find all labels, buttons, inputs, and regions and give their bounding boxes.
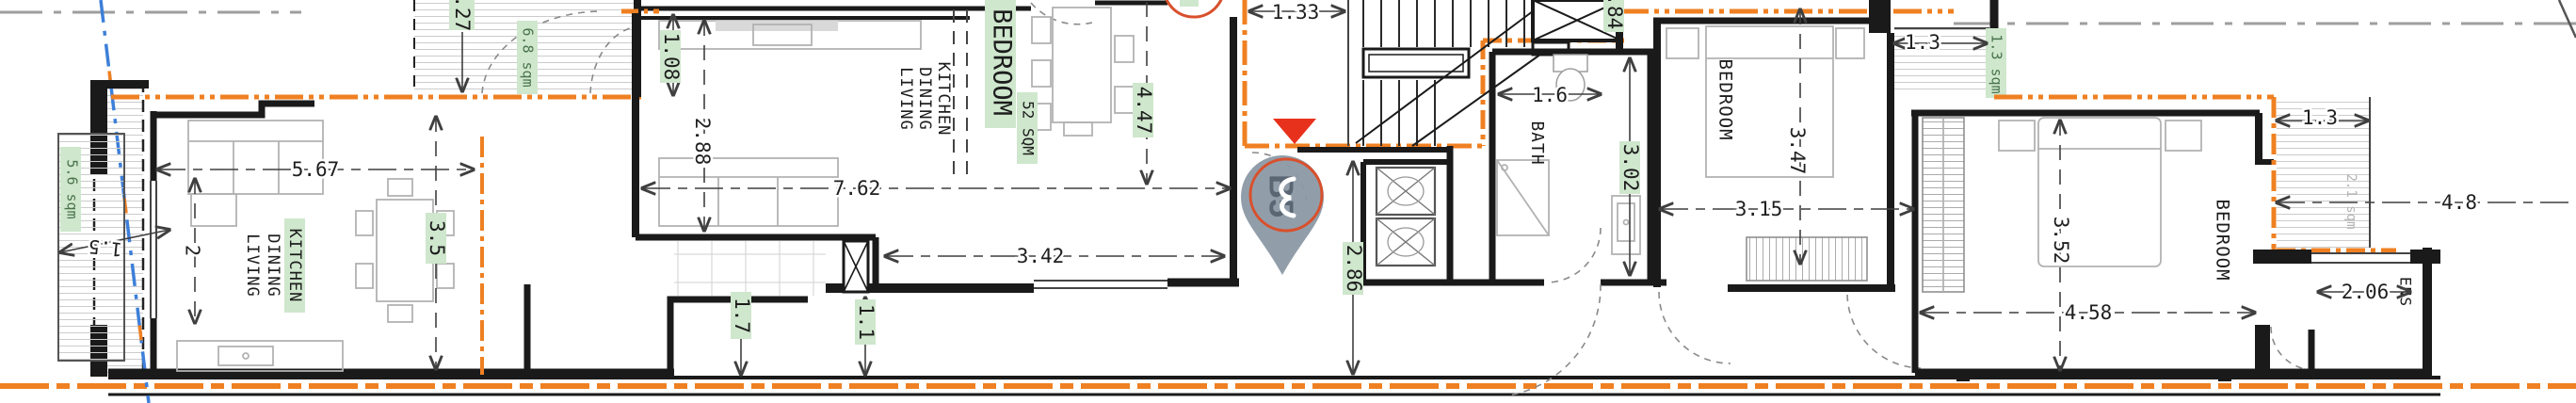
bedroom-door-arc — [1659, 292, 1731, 363]
dim-3-42: 3.42 — [1017, 245, 1065, 267]
unit2-kitchen-label: KITCHEN — [934, 62, 953, 137]
dim-1-3-right: 1.3 — [2302, 106, 2338, 129]
bath-label: BATH — [1527, 121, 1547, 165]
dim-2: 2 — [182, 245, 204, 256]
small-balcony-area-label: 1.3 sqm — [1988, 34, 2005, 93]
dim-3-02: 3.02 — [1619, 144, 1642, 192]
dining-table — [1053, 8, 1111, 122]
dim-3-47: 3.47 — [1786, 127, 1809, 175]
dim-4-8: 4.8 — [2441, 191, 2477, 214]
dim-1-08: 1.08 — [660, 33, 683, 81]
top-balcony: 6.8 sqm — [414, 0, 637, 97]
door-arc — [1847, 295, 1921, 368]
dim-1-7: 1.7 — [731, 298, 753, 333]
dim-2-88: 2.88 — [691, 118, 714, 166]
dim-4-58: 4.58 — [2065, 301, 2113, 324]
nightstand — [1666, 28, 1699, 58]
dim-2-06: 2.06 — [2342, 281, 2390, 303]
dim-5-67: 5.67 — [292, 158, 340, 181]
unit2-furniture — [659, 8, 1134, 226]
dim-3-5: 3.5 — [426, 220, 448, 256]
entrance-marker-triangle — [1273, 119, 1316, 144]
dim-1-5: 1.5 — [88, 235, 123, 262]
unit1-dining-label: DINING — [264, 234, 282, 297]
dim-7-62: 7.62 — [833, 177, 881, 200]
bedroom-right-label: BEDROOM — [2213, 199, 2233, 281]
chaise — [191, 194, 236, 226]
kitchen-counter — [177, 341, 343, 371]
nightstand — [2165, 121, 2201, 151]
bedroom-right: BEDROOM — [1911, 97, 2314, 381]
sofa — [659, 158, 838, 226]
dim-1-84: 1.84 — [1603, 0, 1626, 29]
east-balcony-area-label: 2.1 sqm — [2343, 173, 2359, 229]
bedroom-mid-label: BEDROOM — [1715, 58, 1736, 140]
unit2-bedroom-label: BEDROOM — [988, 8, 1017, 116]
dim-3-52: 3.52 — [2050, 217, 2072, 265]
washer-units — [1377, 168, 1435, 266]
dim-1-1: 1.1 — [855, 304, 877, 340]
location-pin-b5[interactable]: B5 — [1241, 155, 1324, 275]
dim-2-27: 2.27 — [451, 0, 474, 31]
dim-1-33: 1.33 — [1272, 1, 1320, 24]
unit1-room-label: LIVING DINING KITCHEN — [243, 218, 305, 313]
dim-1-3-top: 1.3 — [1905, 31, 1940, 54]
dim-1-6: 1.6 — [1532, 84, 1568, 106]
unit2-dining-label: DINING — [915, 67, 934, 130]
dining-table — [377, 200, 433, 301]
top-balcony-area-label: 6.8 sqm — [520, 27, 537, 87]
wardrobe — [1747, 237, 1867, 281]
utility-closet — [1363, 146, 1450, 282]
ensuite: ENS — [2253, 248, 2440, 378]
terrace-tiles — [674, 241, 826, 296]
dim-3-15: 3.15 — [1735, 198, 1783, 220]
floorplan-stage: 5.6 sqm 6.8 sqm — [0, 0, 2576, 403]
kitchen-sink — [218, 347, 273, 365]
ens-door-arc — [2271, 327, 2314, 370]
stair-core — [1245, 0, 1954, 207]
site-boundary-bottom — [0, 378, 2576, 395]
sofa — [188, 121, 323, 194]
unit1-living-label: LIVING — [243, 234, 262, 297]
dim-4-47: 4.47 — [1133, 87, 1155, 135]
unit2-living-label: LIVING — [896, 67, 915, 130]
dim-2-86: 2.86 — [1343, 245, 1365, 293]
stair-handrail — [1363, 49, 1469, 77]
unit1-kitchen-label: KITCHEN — [285, 229, 304, 303]
nightstand — [1836, 28, 1864, 58]
west-balcony-area-label: 5.6 sqm — [64, 159, 81, 218]
nightstand — [1999, 121, 2035, 151]
unit2-bedroom-area-label: 52 SQM — [1020, 101, 1038, 155]
bedroom-mid: BEDROOM — [1619, 0, 1921, 368]
floor-plan-canvas: 5.6 sqm 6.8 sqm — [0, 0, 2576, 403]
bath-door-arc — [1546, 228, 1601, 282]
